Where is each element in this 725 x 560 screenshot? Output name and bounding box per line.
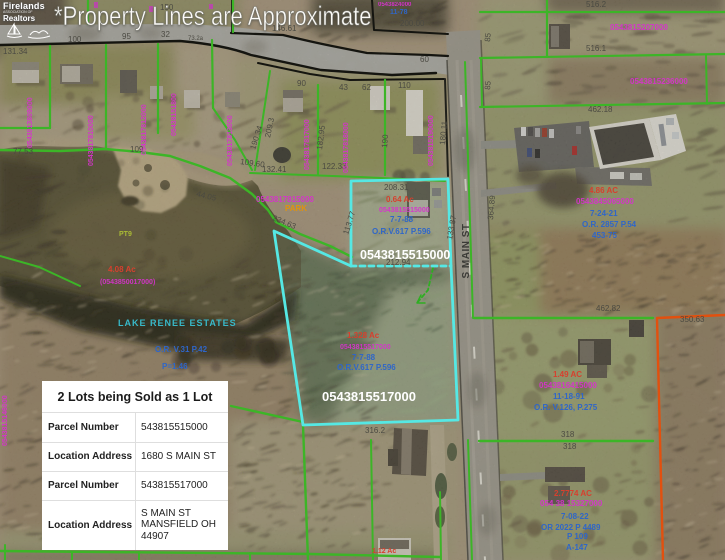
svg-text:0543815236000: 0543815236000 <box>630 77 688 86</box>
svg-text:318: 318 <box>561 430 575 439</box>
svg-text:S MAIN ST: S MAIN ST <box>461 223 472 278</box>
svg-text:0543816415000: 0543816415000 <box>539 381 597 390</box>
svg-text:7-08-22: 7-08-22 <box>561 512 589 521</box>
svg-text:2.7774 AC: 2.7774 AC <box>554 489 592 498</box>
svg-text:110: 110 <box>398 81 411 90</box>
svg-text:0543817812000: 0543817812000 <box>141 104 148 155</box>
svg-text:318: 318 <box>563 442 577 451</box>
svg-text:O.R. V.31 P.42: O.R. V.31 P.42 <box>155 345 208 354</box>
svg-text:11-18-91: 11-18-91 <box>553 392 585 401</box>
svg-text:05438151800: 05438151800 <box>171 93 178 136</box>
svg-text:P=1.46: P=1.46 <box>162 362 188 371</box>
svg-text:7-7-88: 7-7-88 <box>352 353 376 362</box>
svg-text:O.R.V.617 P.596: O.R.V.617 P.596 <box>337 363 396 372</box>
svg-text:60: 60 <box>420 55 429 64</box>
svg-text:516.2: 516.2 <box>586 0 607 9</box>
svg-text:0543815207000: 0543815207000 <box>610 23 668 32</box>
svg-text:0543815515000: 0543815515000 <box>379 207 430 214</box>
svg-text:100: 100 <box>68 35 82 44</box>
svg-text:11-78: 11-78 <box>390 9 408 16</box>
svg-text:4.86 AC: 4.86 AC <box>589 186 618 195</box>
svg-text:62: 62 <box>362 83 371 92</box>
svg-text:0543845065000: 0543845065000 <box>576 197 634 206</box>
svg-text:0543817815000: 0543817815000 <box>256 195 314 204</box>
svg-text:PARK: PARK <box>285 204 307 213</box>
svg-text:0543813809000: 0543813809000 <box>27 97 34 148</box>
svg-text:O.R. 2857 P.54: O.R. 2857 P.54 <box>582 220 637 229</box>
svg-text:453-75: 453-75 <box>592 231 617 240</box>
svg-text:A-147: A-147 <box>566 543 588 552</box>
svg-text:208.31: 208.31 <box>384 183 409 192</box>
svg-text:P 109: P 109 <box>567 532 588 541</box>
svg-text:190: 190 <box>380 134 390 149</box>
svg-text:85: 85 <box>483 32 493 42</box>
svg-text:85: 85 <box>483 80 493 90</box>
svg-text:0543815515000: 0543815515000 <box>360 248 450 262</box>
svg-text:0543817810000: 0543817810000 <box>88 115 95 166</box>
svg-text:0543815146000: 0543815146000 <box>2 395 9 446</box>
svg-text:(0543850017000): (0543850017000) <box>100 279 155 286</box>
svg-text:350.63: 350.63 <box>680 315 705 324</box>
svg-text:90: 90 <box>297 79 306 88</box>
svg-text:73.2a: 73.2a <box>188 36 204 42</box>
svg-text:1.328 Ac: 1.328 Ac <box>347 331 380 340</box>
svg-text:0543824000: 0543824000 <box>378 2 412 8</box>
svg-text:0543817818000: 0543817818000 <box>343 122 350 173</box>
svg-text:462.82: 462.82 <box>596 304 621 313</box>
svg-text:0543815517000: 0543815517000 <box>322 389 416 404</box>
svg-text:0543815517000: 0543815517000 <box>340 344 391 351</box>
svg-text:1.49 AC: 1.49 AC <box>553 370 582 379</box>
svg-text:O.R. V.126, P.275: O.R. V.126, P.275 <box>534 403 598 412</box>
svg-text:95: 95 <box>122 32 131 41</box>
svg-text:4.08 Ac: 4.08 Ac <box>108 265 136 274</box>
svg-text:7-24-21: 7-24-21 <box>590 209 618 218</box>
svg-text:132.41: 132.41 <box>262 165 287 174</box>
svg-text:O.R.V.617 P.596: O.R.V.617 P.596 <box>372 227 431 236</box>
svg-text:1.12 Ac: 1.12 Ac <box>372 548 396 555</box>
svg-text:200.00: 200.00 <box>400 19 425 28</box>
svg-text:131.34: 131.34 <box>3 47 28 56</box>
svg-text:054 38 15327000: 054 38 15327000 <box>540 499 603 508</box>
svg-text:516.1: 516.1 <box>586 44 607 53</box>
svg-text:0543815190000: 0543815190000 <box>428 115 435 166</box>
svg-text:7-7-88: 7-7-88 <box>390 215 414 224</box>
svg-text:43: 43 <box>339 83 348 92</box>
svg-text:PT9: PT9 <box>119 231 132 238</box>
svg-text:316.2: 316.2 <box>365 426 386 435</box>
svg-text:LAKE RENEE ESTATES: LAKE RENEE ESTATES <box>118 318 237 328</box>
svg-text:0543817817000: 0543817817000 <box>304 119 311 170</box>
svg-text:0.64 Ac: 0.64 Ac <box>386 195 414 204</box>
svg-text:462.18: 462.18 <box>588 105 613 114</box>
svg-text:OR 2022 P 4489: OR 2022 P 4489 <box>541 523 601 532</box>
svg-text:0543817813000: 0543817813000 <box>227 115 234 166</box>
